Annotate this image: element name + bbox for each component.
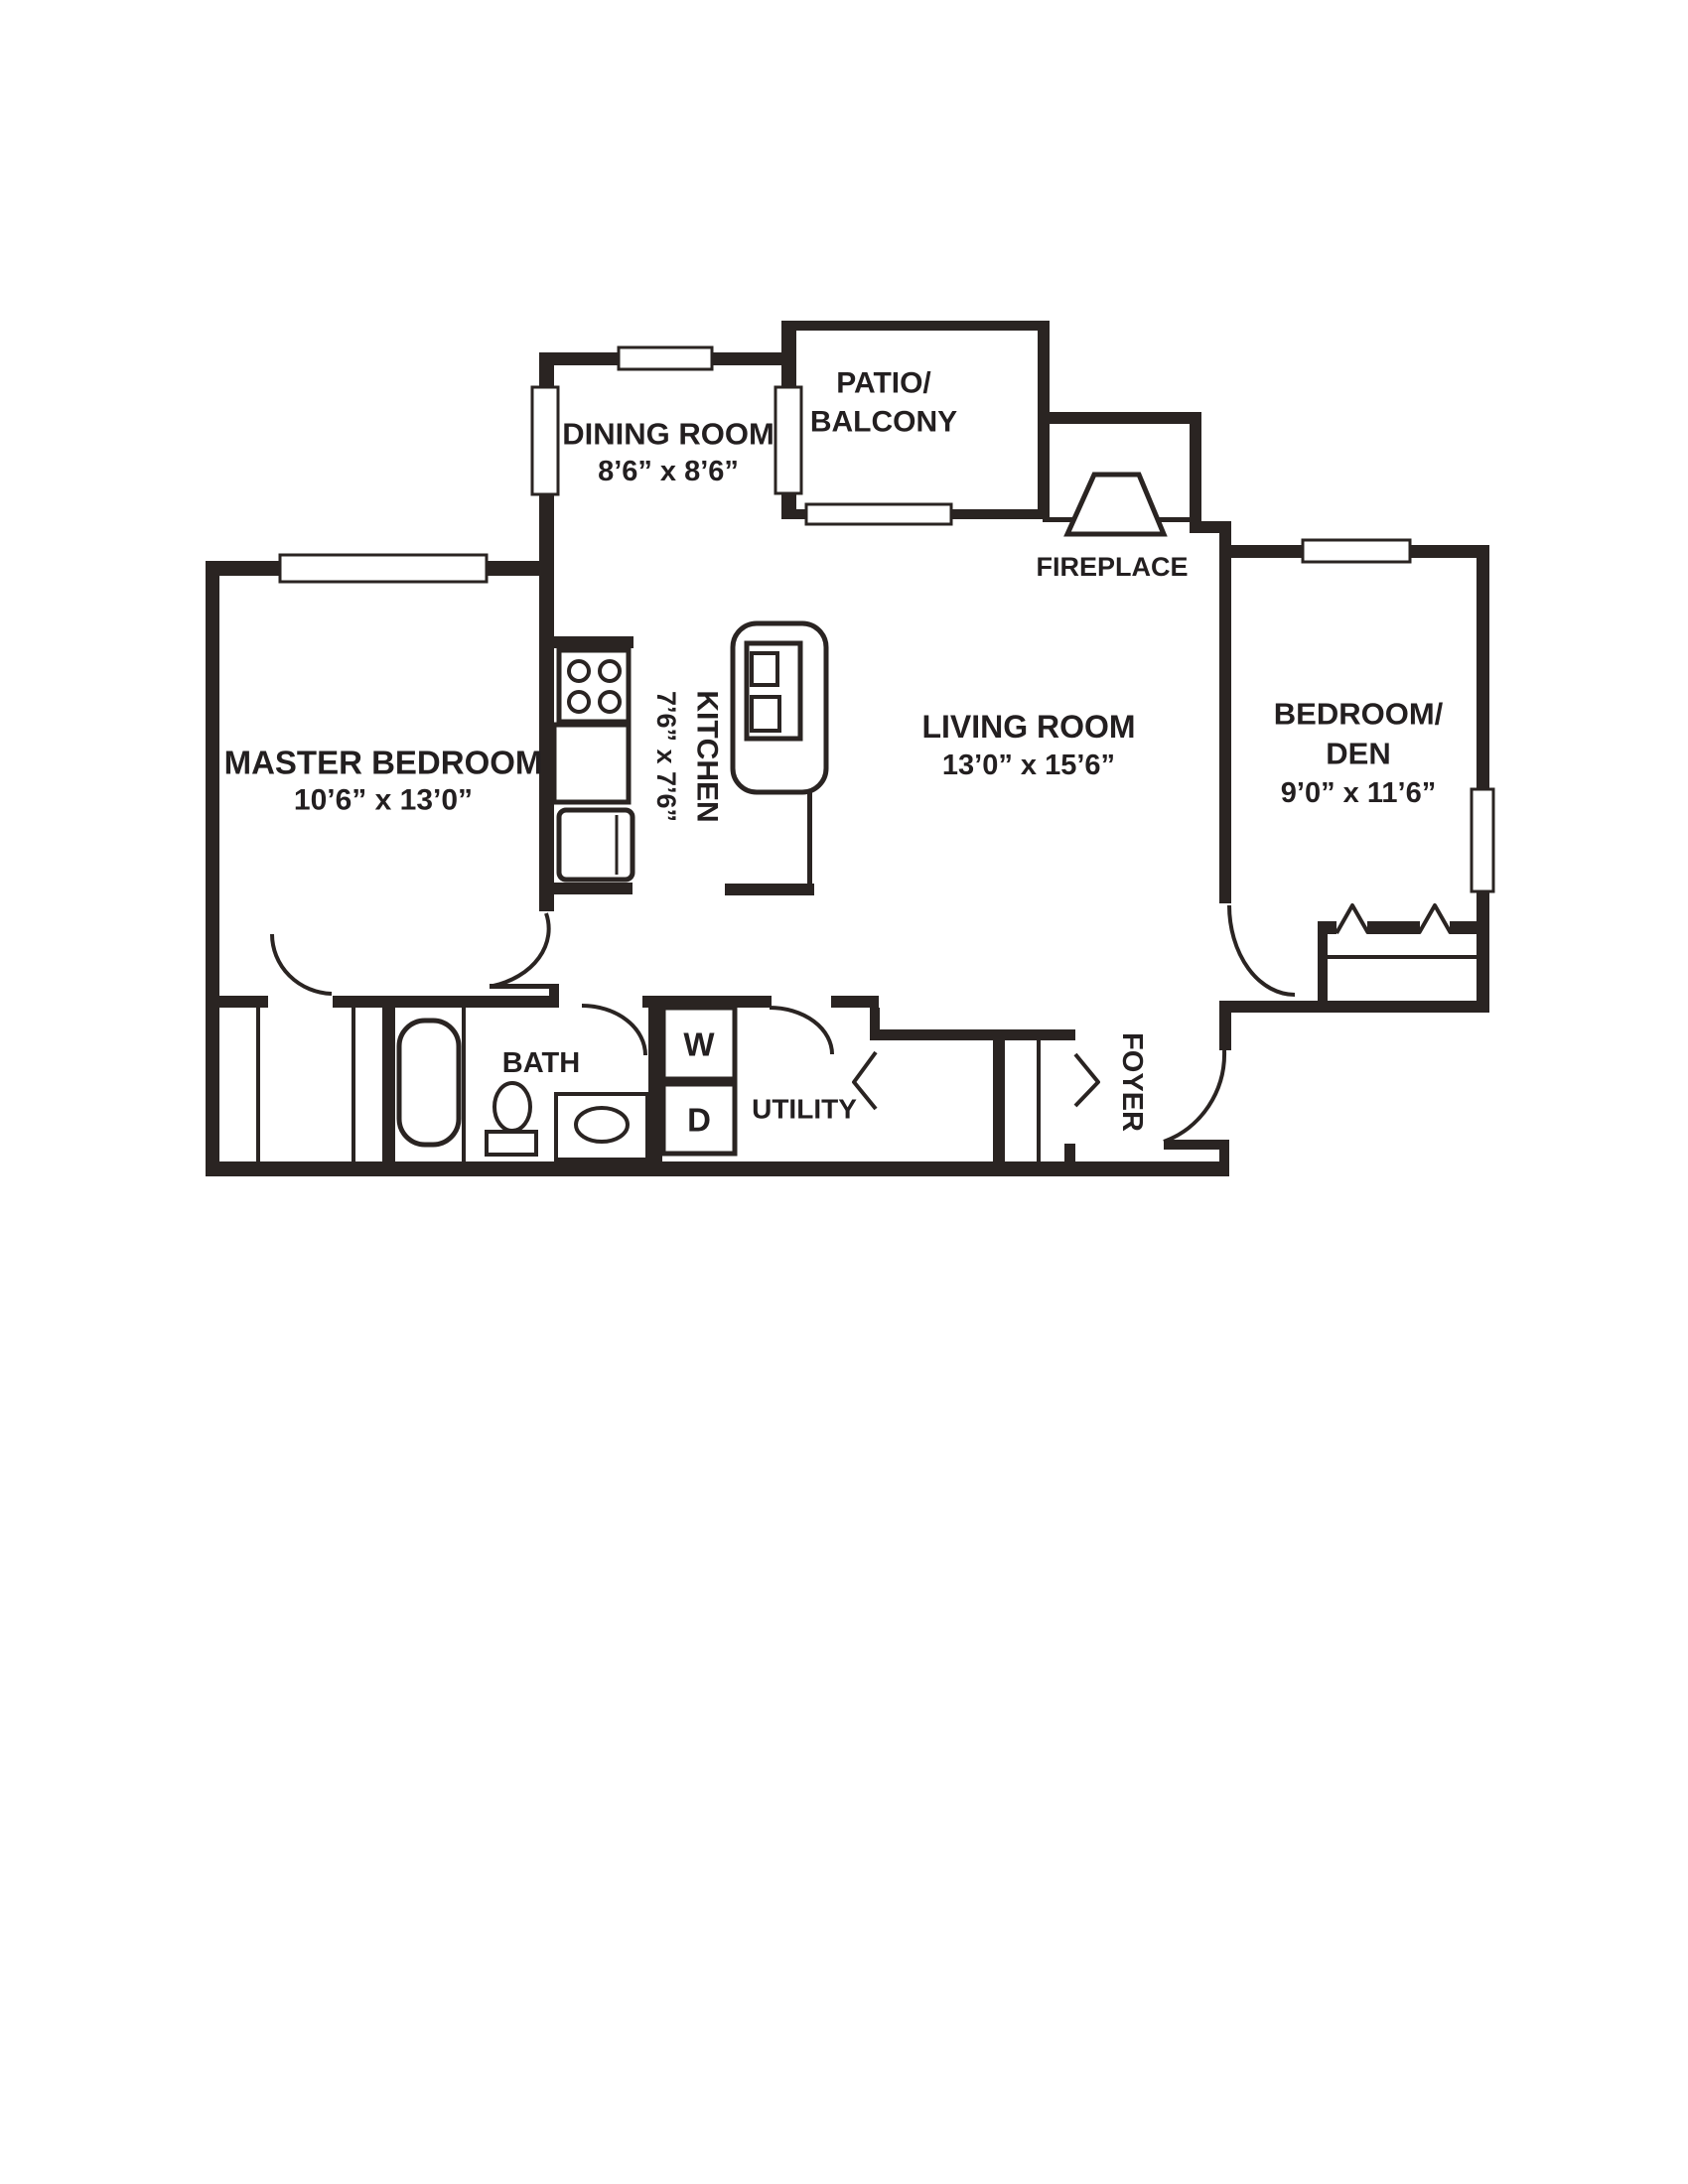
patio-door-window [806,504,951,524]
dining-west-window [532,387,558,494]
bedroom-den-south-wall [1219,1001,1489,1013]
bedroom-den-label-line2: DEN [1326,737,1390,771]
bedroom-den-label-line1: BEDROOM/ [1274,697,1444,732]
burner-icon [569,661,589,681]
utility-north-wall-east [831,996,879,1008]
bedroom-den-door-arc [1229,905,1295,995]
bedroom-den-dims: 9’0” x 11’6” [1281,777,1436,809]
floor-plan-drawing: DINING ROOM 8’6” x 8’6” PATIO/ BALCONY F… [0,0,1688,2184]
washer-label: W [683,1026,715,1063]
island-south-stub [725,884,814,895]
exterior-wall-south [206,1161,1229,1176]
foyer-closet-bifold-icon [1075,1054,1098,1106]
refrigerator-icon [559,810,633,880]
entry-door-jamb [1164,1140,1224,1150]
dining-room-label: DINING ROOM [562,417,774,452]
patio-north-wall [781,321,1050,331]
burner-icon [569,692,589,712]
bedroom-den-east-window [1472,789,1493,891]
labels: DINING ROOM 8’6” x 8’6” PATIO/ BALCONY F… [224,367,1444,1139]
bathtub-icon [399,1021,459,1145]
sink-basin-icon [752,697,779,731]
bedroom-closet-front-c [1450,921,1482,934]
fireplace-north-wall [1038,412,1201,424]
master-closet-door-arc [272,934,332,994]
wall-bath-utility [648,1008,662,1164]
bedroom-closet-front-a [1321,921,1336,934]
master-bedroom-door-arc [493,913,549,986]
fireplace-east-wall [1190,412,1201,533]
vanity-sink-icon [576,1108,628,1142]
kitchen-counter-icon [554,725,629,802]
utility-closet-bifold-icon [854,1052,876,1109]
utility-door-arc [770,1008,832,1054]
toilet-tank-icon [487,1132,536,1155]
floor-plan-page: DINING ROOM 8’6” x 8’6” PATIO/ BALCONY F… [0,0,1688,2184]
master-closet-north-stub [218,996,268,1008]
master-closet-divider-2 [352,1008,355,1161]
foyer-closet-south-jamb [1064,1144,1075,1163]
dining-room-dims: 8’6” x 8’6” [598,456,739,487]
dryer-label: D [687,1102,711,1139]
kitchen-label: KITCHEN [691,690,724,822]
stove-icon [559,650,629,722]
bedroom-closet-bifold-right-icon [1419,905,1451,933]
fireplace-icon [1067,475,1164,534]
bedroom-den-east-wall [1477,545,1489,1013]
bath-door-arc [582,1006,645,1055]
master-closet-divider-1 [256,1008,260,1161]
dining-north-window [619,347,712,369]
hall-south-wall [333,996,559,1008]
hall-closets-north-wall [870,1029,1075,1040]
bedroom-den-north-window [1303,540,1410,562]
master-bedroom-label: MASTER BEDROOM [224,745,543,781]
foyer-east-wall [1219,1013,1231,1050]
burner-icon [600,692,620,712]
burner-icon [600,661,620,681]
bedroom-closet-shelf-line [1324,955,1479,959]
dining-patio-window [775,387,801,493]
patio-label-line1: PATIO/ [836,367,931,400]
bath-label: BATH [502,1047,580,1079]
entry-corner-wall [1219,1140,1229,1176]
foyer-closet-west-wall [993,1029,1005,1164]
patio-label-line2: BALCONY [810,406,957,439]
sink-basin-icon [752,653,777,685]
wall-living-bedroom [1219,521,1231,903]
living-room-dims: 13’0” x 15’6” [942,750,1115,781]
entry-door-arc [1164,1050,1224,1142]
tub-partition-line [462,1008,466,1161]
utility-label: UTILITY [752,1094,857,1125]
master-bedroom-window [280,555,487,582]
kitchen-north-stub [552,636,633,648]
living-room-label: LIVING ROOM [921,709,1135,745]
patio-east-wall [1038,321,1050,415]
bedroom-closet-front-b [1367,921,1420,934]
bedroom-closet-bifold-left-icon [1336,905,1368,933]
foyer-closet-divider [1037,1040,1041,1161]
foyer-label: FOYER [1116,1032,1148,1132]
fireplace-label: FIREPLACE [1036,552,1188,582]
island-east-edge [807,791,812,886]
fireplace-west-wall [1038,412,1050,519]
wall-closet-bath [382,1008,395,1164]
exterior-wall-west [206,561,219,1176]
kitchen-south-stub [552,883,633,894]
master-bedroom-dims: 10’6” x 13’0” [294,784,473,817]
toilet-bowl-icon [494,1083,530,1131]
kitchen-dims: 7’6” x 7’6” [651,691,681,822]
